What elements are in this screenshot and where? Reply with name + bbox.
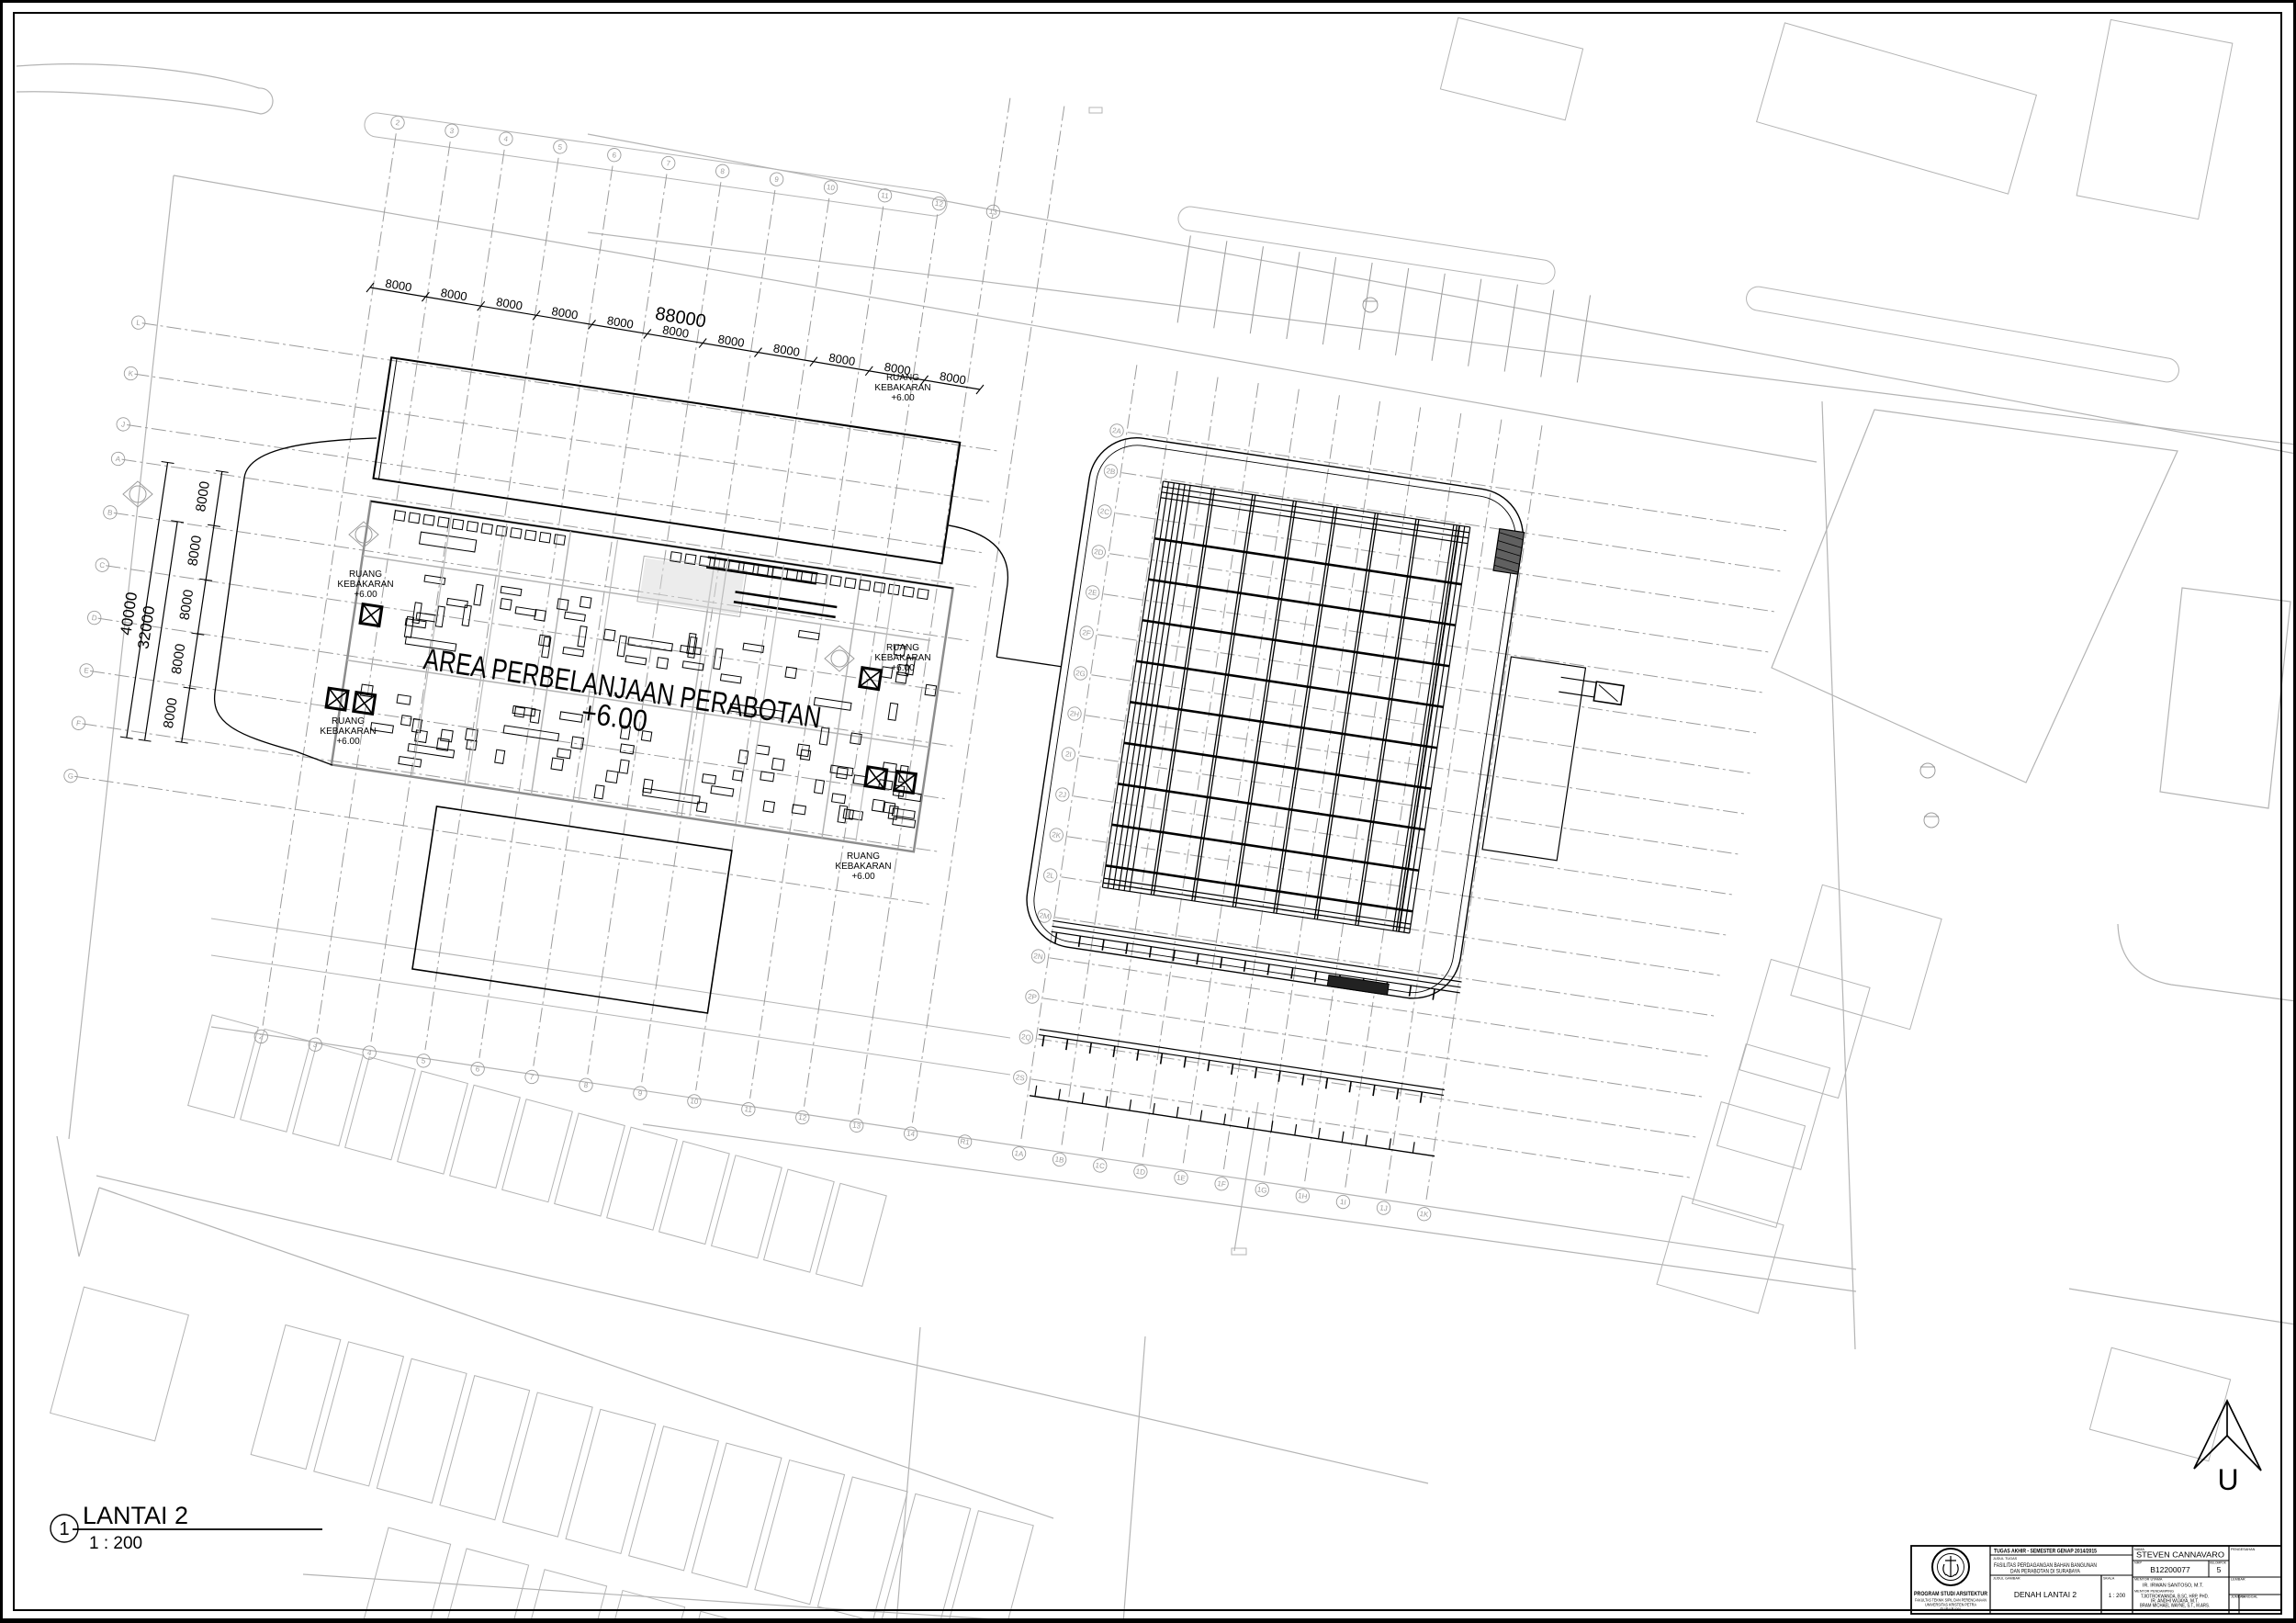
- svg-text:MENTOR UTAMA: MENTOR UTAMA: [2134, 1578, 2163, 1582]
- svg-text:JUDUL GAMBAR: JUDUL GAMBAR: [1993, 1577, 2020, 1581]
- svg-text:RUANG: RUANG: [332, 716, 365, 727]
- svg-text:1F: 1F: [1217, 1179, 1227, 1189]
- svg-text:+6.00: +6.00: [891, 393, 915, 403]
- svg-text:STEVEN CANNAVARO: STEVEN CANNAVARO: [2136, 1550, 2224, 1560]
- svg-text:B12200077: B12200077: [2150, 1565, 2190, 1574]
- svg-text:2S: 2S: [1015, 1073, 1025, 1082]
- svg-text:RUANG: RUANG: [349, 569, 382, 580]
- svg-text:2H: 2H: [1069, 709, 1080, 718]
- svg-text:1D: 1D: [1135, 1167, 1146, 1177]
- svg-text:2E: 2E: [1087, 588, 1097, 597]
- svg-text:1E: 1E: [1176, 1173, 1186, 1182]
- svg-text:1J: 1J: [1379, 1203, 1389, 1212]
- svg-text:2Q: 2Q: [1020, 1032, 1031, 1042]
- svg-text:2D: 2D: [1094, 547, 1105, 557]
- svg-text:DENAH LANTAI 2: DENAH LANTAI 2: [2014, 1590, 2077, 1599]
- svg-text:SKALA: SKALA: [2103, 1577, 2115, 1581]
- svg-text:5: 5: [2217, 1565, 2222, 1574]
- svg-text:KELOMPOK: KELOMPOK: [2210, 1561, 2227, 1565]
- svg-text:1I: 1I: [1339, 1198, 1346, 1207]
- svg-text:2N: 2N: [1033, 952, 1044, 961]
- svg-text:R1: R1: [960, 1137, 971, 1146]
- svg-text:KEBAKARAN: KEBAKARAN: [874, 383, 930, 393]
- svg-text:2P: 2P: [1027, 992, 1037, 1001]
- svg-text:RUANG: RUANG: [886, 373, 919, 383]
- svg-text:1B: 1B: [1054, 1155, 1064, 1165]
- svg-text:+6.00: +6.00: [354, 590, 377, 600]
- svg-text:2F: 2F: [1082, 628, 1092, 637]
- svg-text:NRP: NRP: [2134, 1561, 2142, 1565]
- svg-text:2J: 2J: [1058, 790, 1067, 799]
- svg-text:G: G: [67, 772, 73, 781]
- svg-text:2M: 2M: [1039, 911, 1051, 921]
- svg-text:TUGAS AKHIR - SEMESTER GENAP 2: TUGAS AKHIR - SEMESTER GENAP 2014/2015: [1994, 1549, 2097, 1555]
- svg-text:DAN PERABOTAN DI SURABAYA: DAN PERABOTAN DI SURABAYA: [2010, 1569, 2081, 1575]
- svg-text:KEBAKARAN: KEBAKARAN: [320, 727, 376, 737]
- svg-text:U: U: [2217, 1463, 2238, 1496]
- svg-text:1 : 200: 1 : 200: [89, 1534, 142, 1553]
- svg-text:2A: 2A: [1111, 426, 1122, 435]
- svg-text:1H: 1H: [1298, 1191, 1309, 1200]
- svg-text:1A: 1A: [1014, 1149, 1025, 1158]
- svg-text:LEMBAR: LEMBAR: [2231, 1578, 2245, 1582]
- svg-text:PROGRAM STUDI ARSITEKTUR: PROGRAM STUDI ARSITEKTUR: [1914, 1591, 1987, 1597]
- svg-text:2B: 2B: [1106, 467, 1116, 476]
- svg-text:2G: 2G: [1075, 669, 1086, 678]
- svg-text:KEBAKARAN: KEBAKARAN: [874, 653, 930, 663]
- svg-text:MENTOR PENDAMPING: MENTOR PENDAMPING: [2134, 1590, 2174, 1594]
- svg-text:1 : 200: 1 : 200: [2109, 1594, 2126, 1599]
- svg-text:PENGESAHAN: PENGESAHAN: [2231, 1548, 2256, 1551]
- svg-text:+6.00: +6.00: [851, 872, 875, 882]
- svg-text:1: 1: [59, 1519, 69, 1539]
- svg-text:LANTAI 2: LANTAI 2: [83, 1502, 188, 1529]
- svg-text:2C: 2C: [1099, 507, 1110, 516]
- svg-text:IR. IRWAN SANTOSO, M.T.: IR. IRWAN SANTOSO, M.T.: [2143, 1584, 2203, 1589]
- svg-text:1K: 1K: [1419, 1210, 1430, 1219]
- svg-text:1C: 1C: [1095, 1161, 1106, 1170]
- svg-text:+6.00: +6.00: [891, 663, 915, 673]
- svg-text:1G: 1G: [1256, 1185, 1267, 1194]
- svg-text:KEBAKARAN: KEBAKARAN: [835, 862, 891, 872]
- svg-text:2K: 2K: [1052, 830, 1063, 840]
- svg-text:JUDUL TUGAS: JUDUL TUGAS: [1993, 1557, 2018, 1561]
- svg-text:RUANG: RUANG: [886, 643, 919, 653]
- svg-text:KEBAKARAN: KEBAKARAN: [337, 580, 393, 590]
- svg-text:2I: 2I: [1064, 750, 1072, 759]
- svg-text:BRAM MICHAEL WAYNE, S.T., M.AR: BRAM MICHAEL WAYNE, S.T., M.ARS.: [2140, 1604, 2210, 1609]
- svg-text:+6.00: +6.00: [336, 737, 360, 747]
- svg-text:RUANG: RUANG: [847, 851, 880, 862]
- svg-text:TANGGAL: TANGGAL: [2242, 1595, 2258, 1599]
